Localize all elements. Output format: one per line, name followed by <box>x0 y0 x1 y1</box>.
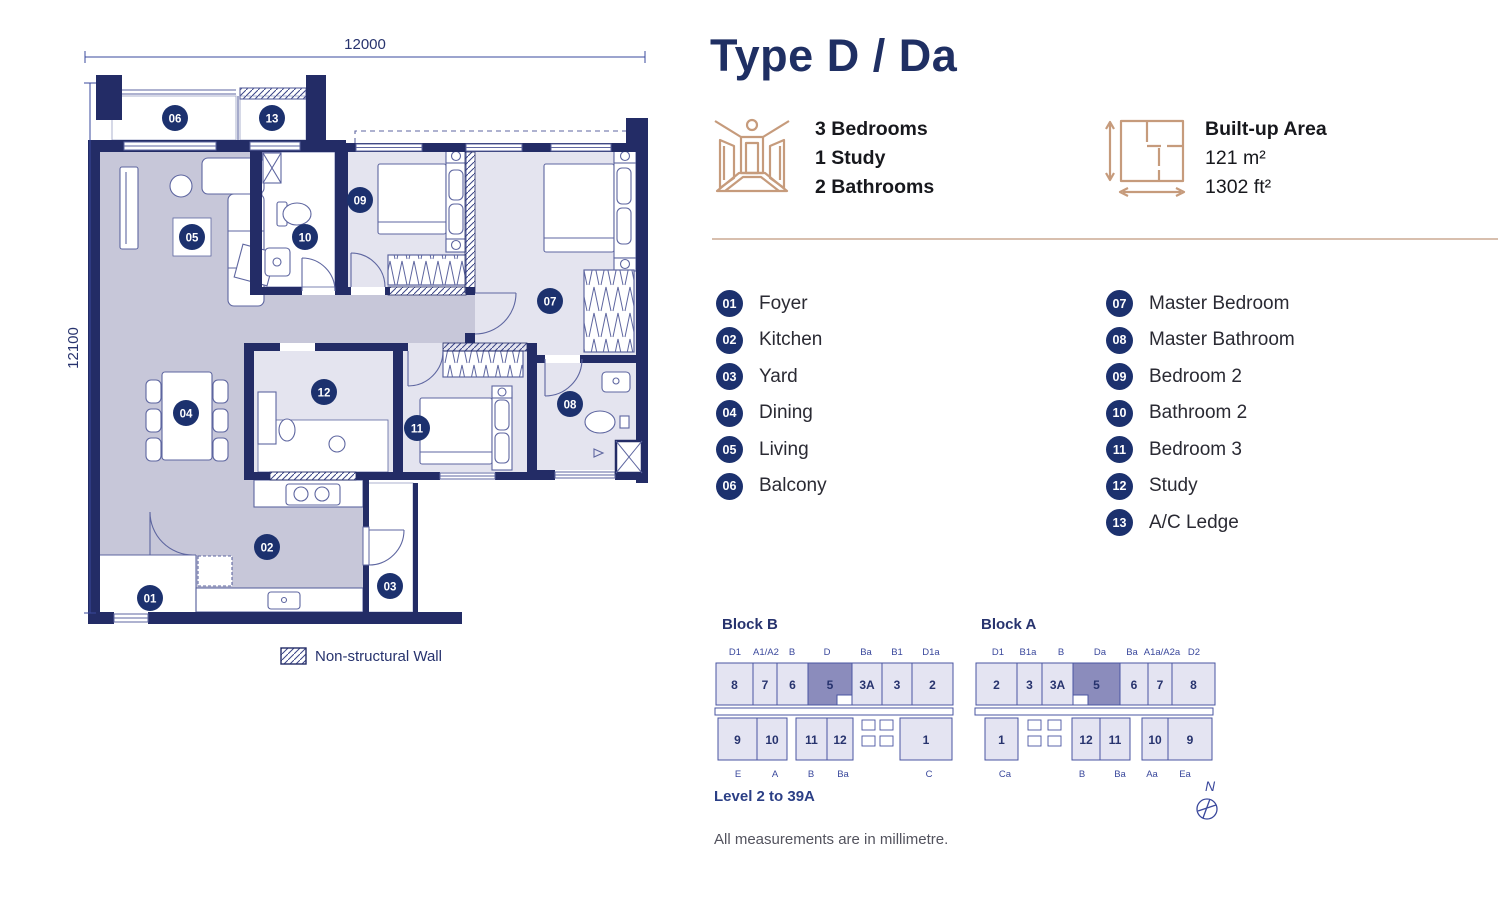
block-unit-9: 9 <box>1168 718 1212 760</box>
block-unit-5: 5 <box>1073 663 1120 705</box>
unit-type-label: C <box>926 769 933 780</box>
block-corridor <box>975 708 1213 715</box>
block-unit-6: 6 <box>1120 663 1148 705</box>
svg-text:12: 12 <box>318 388 331 400</box>
block-unit-3: 3 <box>1017 663 1042 705</box>
unit-type-label: D <box>824 647 831 658</box>
legend-item-foyer: 01Foyer <box>716 290 827 317</box>
block-b-diagram: D1A1/A2BDBaB1D1a87653A3291011121EABBaC <box>710 638 962 790</box>
block-unit-8: 8 <box>1172 663 1215 705</box>
svg-text:6: 6 <box>789 678 796 692</box>
north-compass-icon: N <box>1190 778 1226 828</box>
legend-badge: 11 <box>1106 436 1133 463</box>
block-unit-3: 3 <box>882 663 912 705</box>
svg-text:3: 3 <box>894 678 901 692</box>
legend-label: Yard <box>759 366 798 388</box>
legend-item-bathroom-2: 10Bathroom 2 <box>1106 400 1295 427</box>
legend-label: Bedroom 2 <box>1149 366 1242 388</box>
unit-type-label: Ca <box>999 769 1012 780</box>
room-badge-02: 02 <box>254 534 280 560</box>
block-unit-11: 11 <box>1100 718 1130 760</box>
legend-item-yard: 03Yard <box>716 363 827 390</box>
svg-text:3: 3 <box>1026 678 1033 692</box>
legend-badge: 09 <box>1106 363 1133 390</box>
legend-badge: 07 <box>1106 290 1133 317</box>
svg-text:05: 05 <box>186 233 199 245</box>
unit-type-label: Ba <box>860 647 872 658</box>
unit-type-label: Aa <box>1146 769 1158 780</box>
block-unit-9: 9 <box>718 718 757 760</box>
svg-text:1: 1 <box>923 733 930 747</box>
svg-text:10: 10 <box>765 733 779 747</box>
legend-badge: 06 <box>716 473 743 500</box>
feature-area: Built-up Area 121 m² 1302 ft² <box>1205 115 1327 202</box>
unit-type-label: D1 <box>729 647 741 658</box>
legend-label: Study <box>1149 475 1198 497</box>
block-unit-3A: 3A <box>852 663 882 705</box>
room-badge-03: 03 <box>377 573 403 599</box>
svg-text:11: 11 <box>805 733 818 747</box>
legend-label: A/C Ledge <box>1149 512 1239 534</box>
svg-text:02: 02 <box>261 543 274 555</box>
unit-type-label: Ba <box>1114 769 1126 780</box>
block-core <box>862 720 875 730</box>
block-unit-12: 12 <box>827 718 853 760</box>
legend-label: Balcony <box>759 475 827 497</box>
block-unit-10: 10 <box>757 718 787 760</box>
legend-item-balcony: 06Balcony <box>716 473 827 500</box>
unit-type-label: E <box>735 769 741 780</box>
svg-text:7: 7 <box>1157 678 1164 692</box>
svg-text:2: 2 <box>929 678 936 692</box>
svg-text:01: 01 <box>144 594 157 606</box>
dim-top-label: 12000 <box>344 36 386 53</box>
room-perspective-icon <box>710 116 794 196</box>
area-sqm: 121 m² <box>1205 144 1327 173</box>
svg-text:08: 08 <box>564 400 577 412</box>
room-badge-06: 06 <box>162 105 188 131</box>
dim-left-label: 12100 <box>65 327 82 369</box>
svg-text:10: 10 <box>1148 733 1162 747</box>
room-badge-12: 12 <box>311 379 337 405</box>
block-unit-7: 7 <box>753 663 777 705</box>
svg-text:06: 06 <box>169 114 182 126</box>
unit-type-label: B <box>1079 769 1085 780</box>
svg-text:1: 1 <box>998 733 1005 747</box>
unit-type-label: D2 <box>1188 647 1200 658</box>
svg-text:5: 5 <box>1093 678 1100 692</box>
room-badge-13: 13 <box>259 105 285 131</box>
legend-label: Master Bedroom <box>1149 293 1289 315</box>
svg-text:2: 2 <box>993 678 1000 692</box>
legend-badge: 10 <box>1106 400 1133 427</box>
legend-label: Foyer <box>759 293 808 315</box>
block-unit-10: 10 <box>1142 718 1168 760</box>
legend-label: Dining <box>759 402 813 424</box>
unit-type-label: A1a/A2a <box>1144 647 1181 658</box>
legend-item-bedroom-2: 09Bedroom 2 <box>1106 363 1295 390</box>
legend-col1: 01Foyer02Kitchen03Yard04Dining05Living06… <box>716 290 827 509</box>
compass-n-label: N <box>1205 778 1216 794</box>
block-core <box>1028 720 1041 730</box>
measurements-footnote: All measurements are in millimetre. <box>714 831 948 848</box>
legend-badge: 05 <box>716 436 743 463</box>
svg-text:04: 04 <box>180 409 193 421</box>
svg-text:9: 9 <box>1187 733 1194 747</box>
block-b-title: Block B <box>722 616 778 633</box>
unit-type-label: A <box>772 769 779 780</box>
svg-text:12: 12 <box>833 733 847 747</box>
room-badge-01: 01 <box>137 585 163 611</box>
unit-type-label: A1/A2 <box>753 647 779 658</box>
legend-label: Bedroom 3 <box>1149 439 1242 461</box>
room-badge-11: 11 <box>404 415 430 441</box>
block-unit-6: 6 <box>777 663 808 705</box>
svg-text:10: 10 <box>299 233 312 245</box>
svg-text:07: 07 <box>544 297 557 309</box>
level-note: Level 2 to 39A <box>714 788 815 805</box>
unit-type-label: B <box>808 769 814 780</box>
svg-text:6: 6 <box>1131 678 1138 692</box>
floorplan-drawing: 12000 12100 Non-structural Wall 01020304… <box>0 0 700 700</box>
block-unit-2: 2 <box>976 663 1017 705</box>
legend-badge: 01 <box>716 290 743 317</box>
wall-legend-label: Non-structural Wall <box>315 648 442 665</box>
area-label: Built-up Area <box>1205 115 1327 144</box>
legend-label: Bathroom 2 <box>1149 402 1247 424</box>
svg-text:09: 09 <box>354 196 367 208</box>
room-badge-04: 04 <box>173 400 199 426</box>
block-unit-5: 5 <box>808 663 852 705</box>
feature-bedrooms: 3 Bedrooms <box>815 115 934 144</box>
page-title: Type D / Da <box>710 30 957 82</box>
legend-item-a-c-ledge: 13A/C Ledge <box>1106 509 1295 536</box>
unit-type-label: B1a <box>1020 647 1038 658</box>
legend-item-bedroom-3: 11Bedroom 3 <box>1106 436 1295 463</box>
unit-type-label: B <box>789 647 795 658</box>
block-unit-1: 1 <box>900 718 952 760</box>
block-unit-11: 11 <box>796 718 827 760</box>
legend-badge: 02 <box>716 327 743 354</box>
legend-badge: 12 <box>1106 473 1133 500</box>
wall-legend: Non-structural Wall <box>281 648 442 665</box>
block-unit-7: 7 <box>1148 663 1172 705</box>
area-dimensions-icon <box>1103 116 1191 200</box>
legend-label: Kitchen <box>759 329 822 351</box>
legend-badge: 08 <box>1106 327 1133 354</box>
svg-text:8: 8 <box>731 678 738 692</box>
svg-text:03: 03 <box>384 582 397 594</box>
legend-item-dining: 04Dining <box>716 400 827 427</box>
block-a-diagram: D1B1aBDaBaA1a/A2aD2233A567811211109CaBBa… <box>968 638 1220 790</box>
block-unit-3A: 3A <box>1042 663 1073 705</box>
svg-text:8: 8 <box>1190 678 1197 692</box>
room-badge-07: 07 <box>537 288 563 314</box>
svg-text:11: 11 <box>1109 733 1122 747</box>
unit-type-label: Ba <box>837 769 849 780</box>
svg-text:9: 9 <box>734 733 741 747</box>
unit-type-label: Da <box>1094 647 1107 658</box>
svg-text:12: 12 <box>1079 733 1093 747</box>
block-core <box>880 736 893 746</box>
svg-text:3A: 3A <box>1050 678 1066 692</box>
unit-type-label: B1 <box>891 647 903 658</box>
block-a-title: Block A <box>981 616 1036 633</box>
svg-text:7: 7 <box>762 678 769 692</box>
legend-badge: 13 <box>1106 509 1133 536</box>
legend-item-kitchen: 02Kitchen <box>716 327 827 354</box>
block-core <box>1028 736 1041 746</box>
svg-text:3A: 3A <box>859 678 875 692</box>
unit-type-label: B <box>1058 647 1064 658</box>
legend-badge: 03 <box>716 363 743 390</box>
legend-label: Master Bathroom <box>1149 329 1295 351</box>
legend-item-study: 12Study <box>1106 473 1295 500</box>
legend-col2: 07Master Bedroom08Master Bathroom09Bedro… <box>1106 290 1295 546</box>
unit-type-label: Ba <box>1126 647 1138 658</box>
room-badge-10: 10 <box>292 224 318 250</box>
area-sqft: 1302 ft² <box>1205 173 1327 202</box>
block-unit-1: 1 <box>985 718 1018 760</box>
legend-item-living: 05Living <box>716 436 827 463</box>
legend-item-master-bedroom: 07Master Bedroom <box>1106 290 1295 317</box>
legend-badge: 04 <box>716 400 743 427</box>
block-corridor <box>715 708 953 715</box>
block-unit-8: 8 <box>716 663 753 705</box>
unit-type-label: D1 <box>992 647 1004 658</box>
svg-text:11: 11 <box>411 424 424 436</box>
room-badge-08: 08 <box>557 391 583 417</box>
block-core <box>862 736 875 746</box>
block-core <box>880 720 893 730</box>
block-unit-2: 2 <box>912 663 953 705</box>
legend-item-master-bathroom: 08Master Bathroom <box>1106 327 1295 354</box>
svg-text:13: 13 <box>266 114 279 126</box>
room-badge-05: 05 <box>179 224 205 250</box>
block-unit-12: 12 <box>1072 718 1100 760</box>
block-core <box>1048 736 1061 746</box>
feature-bathrooms: 2 Bathrooms <box>815 173 934 202</box>
room-badge-09: 09 <box>347 187 373 213</box>
feature-rooms: 3 Bedrooms 1 Study 2 Bathrooms <box>815 115 934 202</box>
feature-study: 1 Study <box>815 144 934 173</box>
svg-text:5: 5 <box>827 678 834 692</box>
unit-type-label: D1a <box>922 647 940 658</box>
block-core <box>1048 720 1061 730</box>
legend-label: Living <box>759 439 809 461</box>
section-divider <box>712 238 1498 240</box>
